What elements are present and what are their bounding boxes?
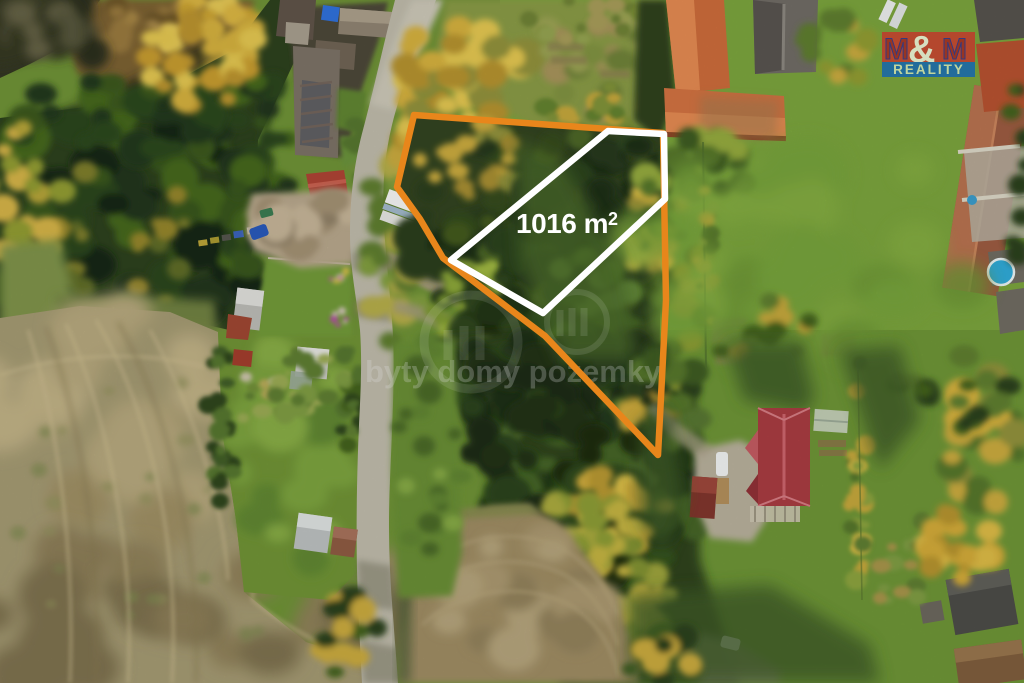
svg-text:1016 m2: 1016 m2	[516, 208, 618, 239]
svg-text:REALITY: REALITY	[893, 62, 965, 77]
svg-text:byty domy pozemky: byty domy pozemky	[365, 354, 662, 389]
